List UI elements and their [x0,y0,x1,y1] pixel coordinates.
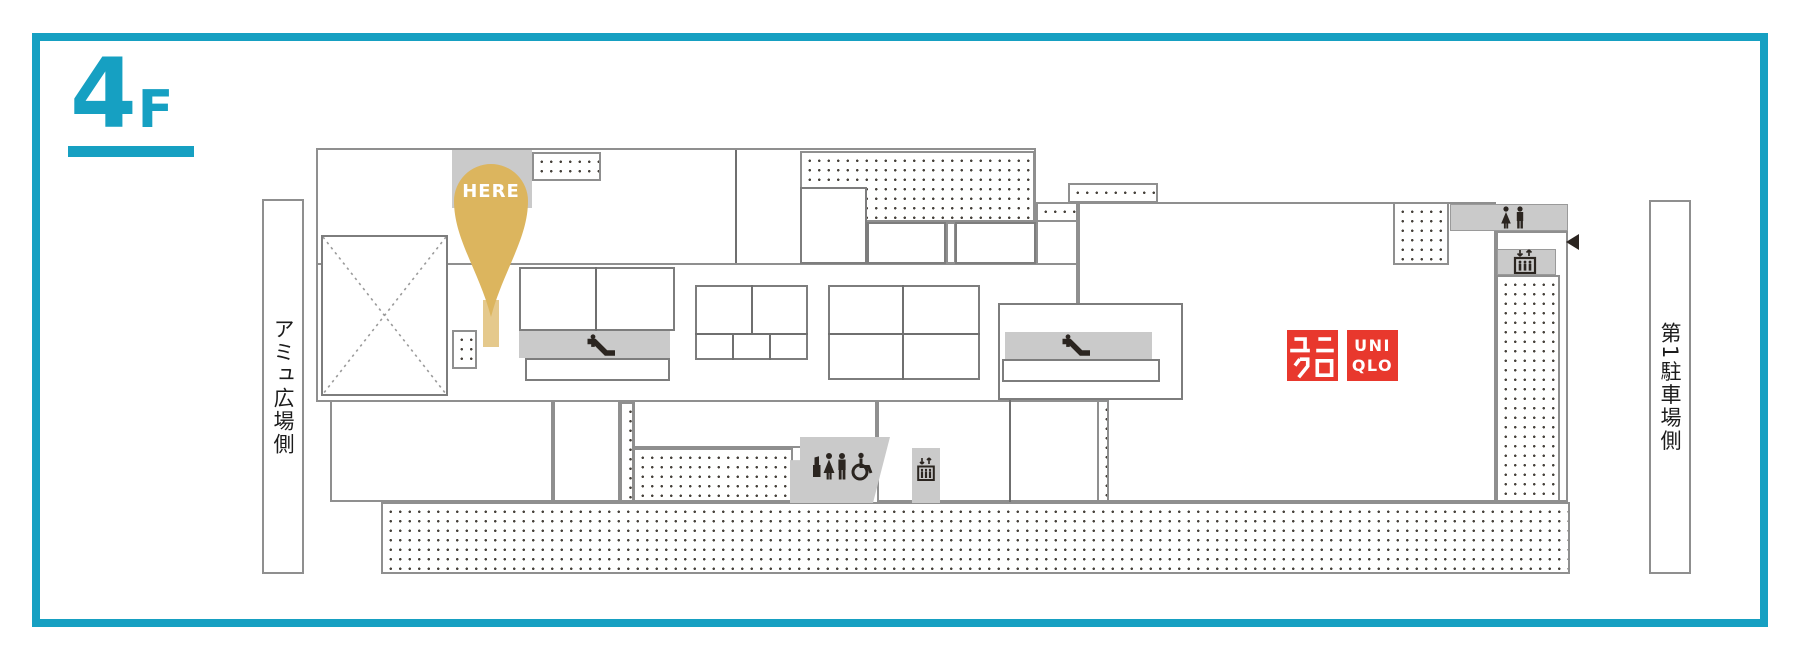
floorplan-lower-cell [553,400,620,502]
wall-line [1009,400,1011,502]
uniqlo-logo-en-line2: QLO [1352,356,1393,375]
side-label-right-box: 第1駐車場側 [1649,200,1691,574]
stippled-box-above-uniqlo [1068,183,1158,203]
restroom-women-icon [824,453,835,480]
stippled-strip-lower-right [1097,400,1109,502]
side-label-left-box: アミュ広場側 [262,199,304,574]
uniqlo-logo-en: UNI QLO [1347,330,1398,381]
wall-line [695,333,808,335]
wall-line [732,333,734,360]
floor-suffix: F [138,84,174,136]
uniqlo-katakana-icon [1287,330,1338,381]
entrance-arrow-icon [1566,234,1579,250]
stippled-strip-left [452,330,477,369]
crossed-out-area [321,235,448,396]
powder-room-icon [813,456,821,477]
escalator-icon [1060,334,1092,356]
escalator-landing-left [525,358,670,381]
stippled-strip-lower-left [620,402,634,502]
floor-map-page: 4F アミュ広場側 第1駐車場側 [0,0,1800,660]
stippled-area-top-left [532,152,601,181]
wall-line [769,333,771,360]
floor-number: 4 [70,46,135,142]
stippled-area-lower-center [633,448,793,502]
escalator-room-left [519,267,675,331]
floor-label: 4F [70,46,173,142]
escalator-icon [585,334,617,356]
restroom-women-icon [1499,206,1529,229]
stippled-column-right [1496,275,1560,502]
stippled-area-bottom-band [381,502,1570,574]
stippled-step-box [1036,202,1078,222]
floor-label-underline [68,146,194,157]
wall-line [735,150,737,263]
uniqlo-logo-jp: ユニクロ [1287,330,1338,381]
side-label-left: アミュ広場側 [268,318,298,456]
room [955,222,1036,264]
wall-line [595,267,597,331]
elevator-icon [1513,249,1537,274]
room [800,187,867,264]
room [867,222,946,264]
here-marker [441,149,541,321]
wall-line [828,333,980,335]
floorplan-lower-left-room [330,400,553,502]
restroom-men-icon [1517,206,1523,228]
side-label-right: 第1駐車場側 [1655,322,1685,452]
crossed-out-area-icon [323,237,446,394]
here-marker-label: HERE [449,181,533,202]
restroom-icon-row [810,452,880,488]
wheelchair-accessible-icon [853,453,871,479]
elevator-icon [917,457,935,491]
wall-line [751,285,753,333]
restroom-men-icon [838,453,845,480]
escalator-landing-right [1002,359,1160,382]
stippled-box-top-right [1393,202,1449,265]
uniqlo-logo-en-line1: UNI [1354,336,1391,355]
